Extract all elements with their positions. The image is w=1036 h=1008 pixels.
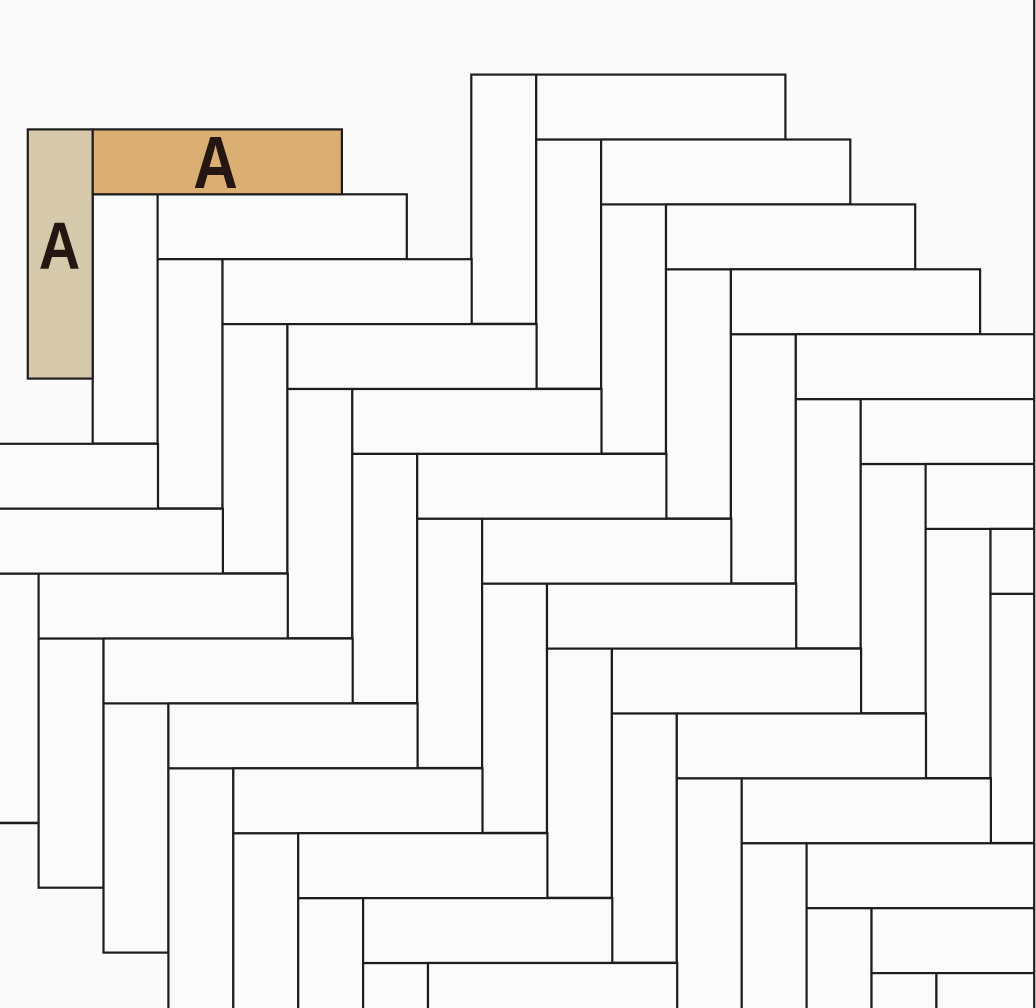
svg-text:A: A [193, 122, 238, 205]
svg-text:A: A [39, 209, 81, 284]
